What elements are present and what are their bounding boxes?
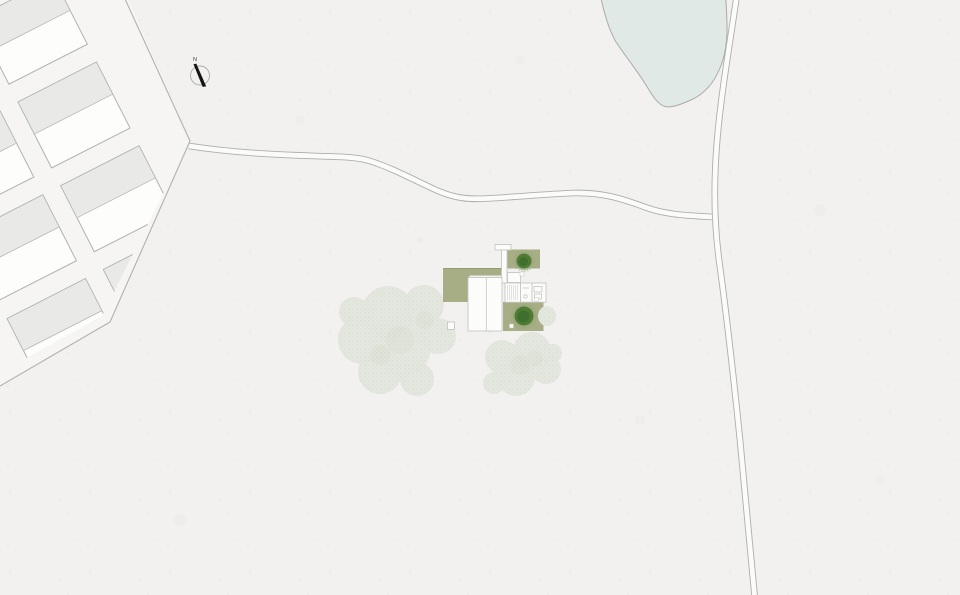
east-wing [505, 283, 546, 302]
skylight-dot [535, 298, 539, 302]
shrub-east [538, 306, 556, 326]
north-arrow-label: N [193, 57, 197, 63]
garden-shed [448, 322, 455, 330]
skylight-dot [520, 272, 524, 276]
skylight-dot [510, 324, 514, 328]
spine-cap-roof [495, 245, 511, 251]
main-roof [468, 278, 502, 332]
entry-box [508, 273, 521, 283]
site-plan-canvas: N [0, 0, 960, 595]
